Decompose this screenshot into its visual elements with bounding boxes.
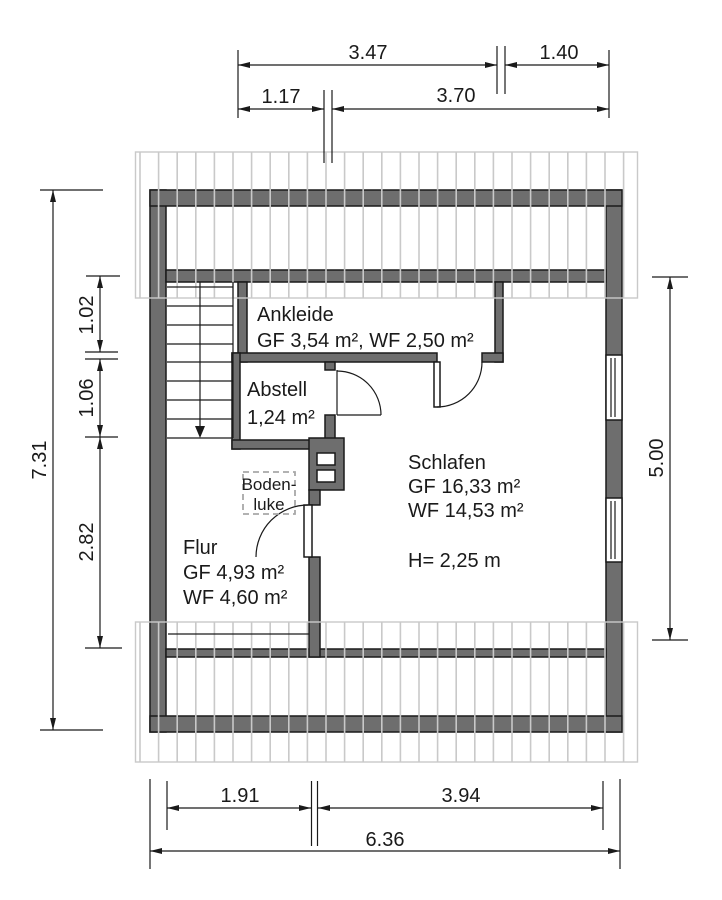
walls [150,190,622,732]
dimensions-left: 7.31 1.02 1.06 2.82 [29,190,122,730]
dim-arrow [150,848,162,854]
dim-label-bottom: 3.94 [442,785,481,807]
ankleide-wall-left [238,282,247,362]
stair-direction-arrow [195,426,205,438]
staircase [167,282,233,438]
schlafen-wf: WF 14,53 m² [408,500,524,522]
dim-arrow [50,718,56,730]
dim-arrow [97,340,103,352]
outer-wall-bottom [150,716,622,732]
bodenluke-label-line1: Boden- [242,475,297,494]
chimney-flue-2 [317,470,335,482]
bodenluke-hatch: Boden- luke [242,472,297,514]
room-labels: Ankleide GF 3,54 m², WF 2,50 m² Abstell … [183,304,524,609]
flur-gf: GF 4,93 m² [183,562,284,584]
window-1 [606,355,622,420]
dimensions-right: 5.00 [646,277,688,640]
ankleide-areas: GF 3,54 m², WF 2,50 m² [257,330,474,352]
roof-hatch-bottom [136,622,638,762]
dim-arrow [608,848,620,854]
ankleide-wall-right [495,282,503,362]
floor-plan-drawing: Boden- luke Ankleide GF 3,54 m², WF 2,50… [0,0,722,900]
dim-arrow [50,190,56,202]
dim-arrow [597,62,609,68]
window-frame [606,498,622,562]
door-swing-arc [437,362,482,407]
dim-arrow [238,106,250,112]
partition-wall-a [232,353,437,362]
dim-arrow [591,805,603,811]
dim-label-left: 1.02 [76,296,98,335]
dim-arrow [312,106,324,112]
schlafen-name: Schlafen [408,452,486,474]
dim-arrow [597,106,609,112]
dim-arrow [485,62,497,68]
dimensions-bottom: 1.91 3.94 6.36 [150,779,620,869]
dim-arrow [238,62,250,68]
dim-arrow [97,276,103,288]
window-2 [606,498,622,562]
dim-arrow [97,425,103,437]
dim-label-top: 1.40 [540,42,579,64]
door-swing-arc [337,371,381,415]
dim-label-left: 1.06 [76,379,98,418]
dim-label-bottom: 6.36 [366,829,405,851]
dim-arrow [667,628,673,640]
door-leaf [434,362,440,407]
dim-arrow [332,106,344,112]
door-leaf [304,505,312,557]
abstell-areas: 1,24 m² [247,407,315,429]
outer-wall-right [606,190,622,732]
dim-label-top: 3.70 [437,85,476,107]
dim-label-top: 1.17 [262,86,301,108]
dim-label-left: 2.82 [76,523,98,562]
dim-arrow [667,277,673,289]
schlafen-height: H= 2,25 m [408,550,501,572]
divider-wall-upper [309,490,320,505]
dim-arrow [318,805,330,811]
dim-label-bottom: 1.91 [221,785,260,807]
knee-wall-bottom [166,649,606,657]
divider-wall-lower [309,557,320,657]
dim-label-right: 5.00 [646,439,668,478]
ankleide-name: Ankleide [257,304,334,326]
floorplan-page: Boden- luke Ankleide GF 3,54 m², WF 2,50… [0,0,722,900]
dim-arrow [167,805,179,811]
dim-label-left: 7.31 [29,441,51,480]
knee-wall-top [166,270,606,282]
chimney-flue-1 [317,453,335,465]
schlafen-gf: GF 16,33 m² [408,476,521,498]
outer-wall-top [150,190,622,206]
roof-hatch-border [136,622,638,762]
dim-arrow [97,437,103,449]
door-abstell [337,370,381,415]
abstell-wall-right-upper [325,362,335,370]
door-ankleide [434,362,482,407]
partition-wall-b [482,353,503,362]
flur-name: Flur [183,537,218,559]
dim-arrow [299,805,311,811]
dimensions-top: 3.47 1.40 1.17 3.70 [238,42,609,163]
window-frame [606,355,622,420]
dim-arrow [505,62,517,68]
dim-arrow [97,636,103,648]
dim-arrow [97,359,103,371]
abstell-name: Abstell [247,379,307,401]
flur-wf: WF 4,60 m² [183,587,288,609]
bodenluke-label-line2: luke [253,495,284,514]
dim-label-top: 3.47 [349,42,388,64]
